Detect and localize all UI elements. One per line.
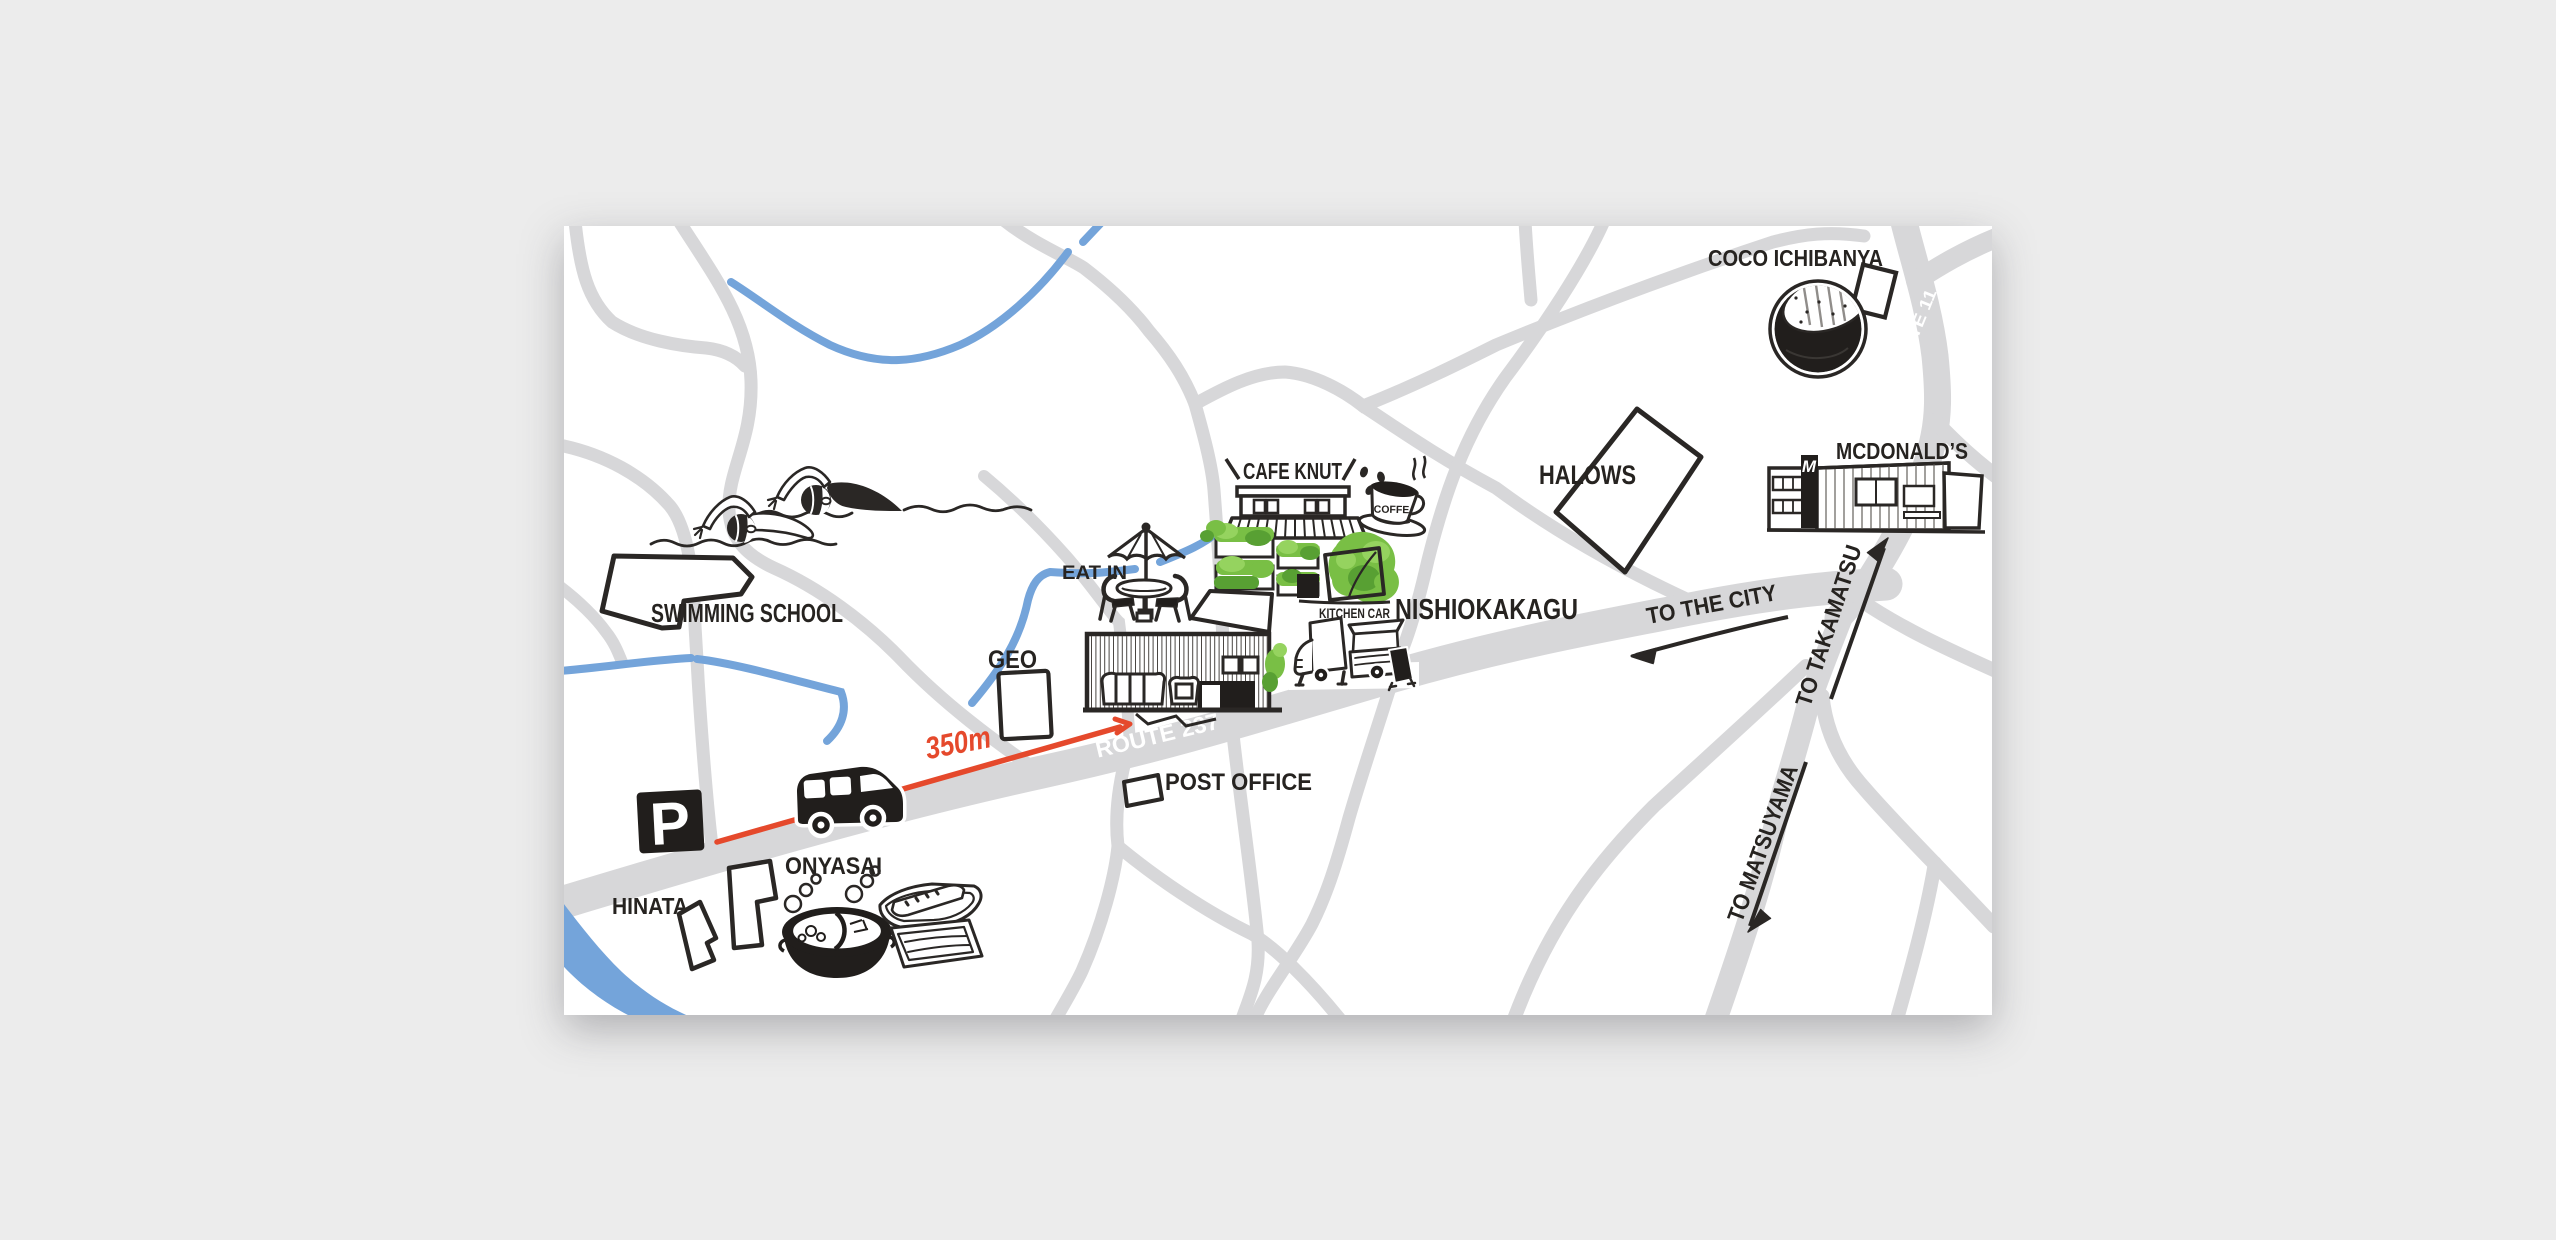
svg-text:HINATA: HINATA (612, 893, 688, 919)
svg-text:P: P (648, 789, 691, 858)
svg-text:CAFE KNUT: CAFE KNUT (1243, 458, 1342, 484)
svg-text:350m: 350m (922, 719, 993, 766)
svg-text:POST OFFICE: POST OFFICE (1165, 769, 1312, 796)
svg-text:HALOWS: HALOWS (1539, 460, 1636, 490)
svg-text:M: M (1802, 457, 1817, 476)
svg-text:COCO ICHIBANYA: COCO ICHIBANYA (1708, 245, 1883, 271)
svg-text:COFFE: COFFE (1374, 504, 1410, 517)
svg-text:NISHIOKAKAGU: NISHIOKAKAGU (1395, 594, 1578, 626)
svg-text:EAT IN: EAT IN (1062, 563, 1127, 584)
svg-text:SWIMMING SCHOOL: SWIMMING SCHOOL (651, 598, 843, 628)
svg-text:MCDONALD’S: MCDONALD’S (1836, 438, 1968, 464)
